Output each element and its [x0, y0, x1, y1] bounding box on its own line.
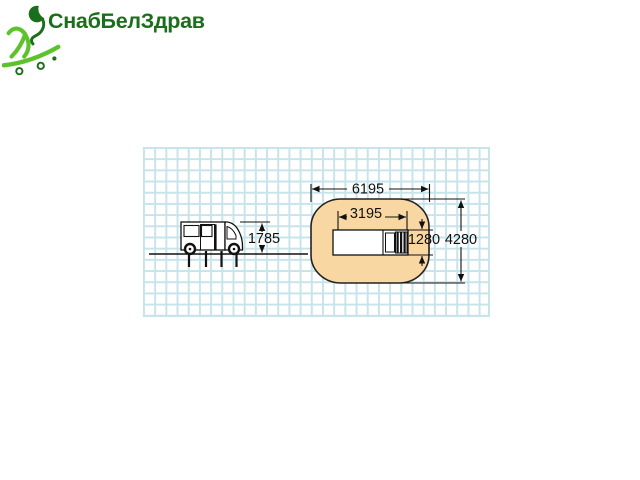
figure-arm: [9, 29, 26, 35]
wheel-hub: [189, 248, 192, 251]
skateboard-wheel: [16, 68, 22, 74]
dim-label-height: 1785: [248, 231, 280, 247]
brand-name: СнабБелЗдрав: [48, 9, 205, 34]
diagram-drawing: 1785 6195: [143, 147, 488, 315]
dim-label-zone-length: 6195: [352, 182, 384, 198]
wheel-hub: [233, 248, 236, 251]
dimension-diagram: 1785 6195: [143, 147, 490, 317]
figure-leg-left: [12, 34, 26, 56]
vehicle-side-view: 1785: [149, 222, 308, 267]
vehicle-window: [184, 226, 199, 237]
figure-arm-dark: [31, 20, 43, 44]
vehicle-top-view: 6195 3195: [311, 182, 477, 284]
door-pillar: [214, 225, 217, 251]
dim-label-equipment-length: 3195: [350, 206, 382, 222]
equipment-footprint: [333, 230, 408, 255]
vehicle-window: [202, 226, 213, 237]
skateboard-wheel: [38, 63, 44, 69]
dim-label-equipment-width: 1280: [408, 232, 440, 248]
logo-dot: [52, 56, 56, 60]
logo: СнабБелЗдрав: [2, 2, 222, 78]
dim-height: 1785: [240, 222, 280, 253]
dim-label-zone-width: 4280: [445, 232, 477, 248]
